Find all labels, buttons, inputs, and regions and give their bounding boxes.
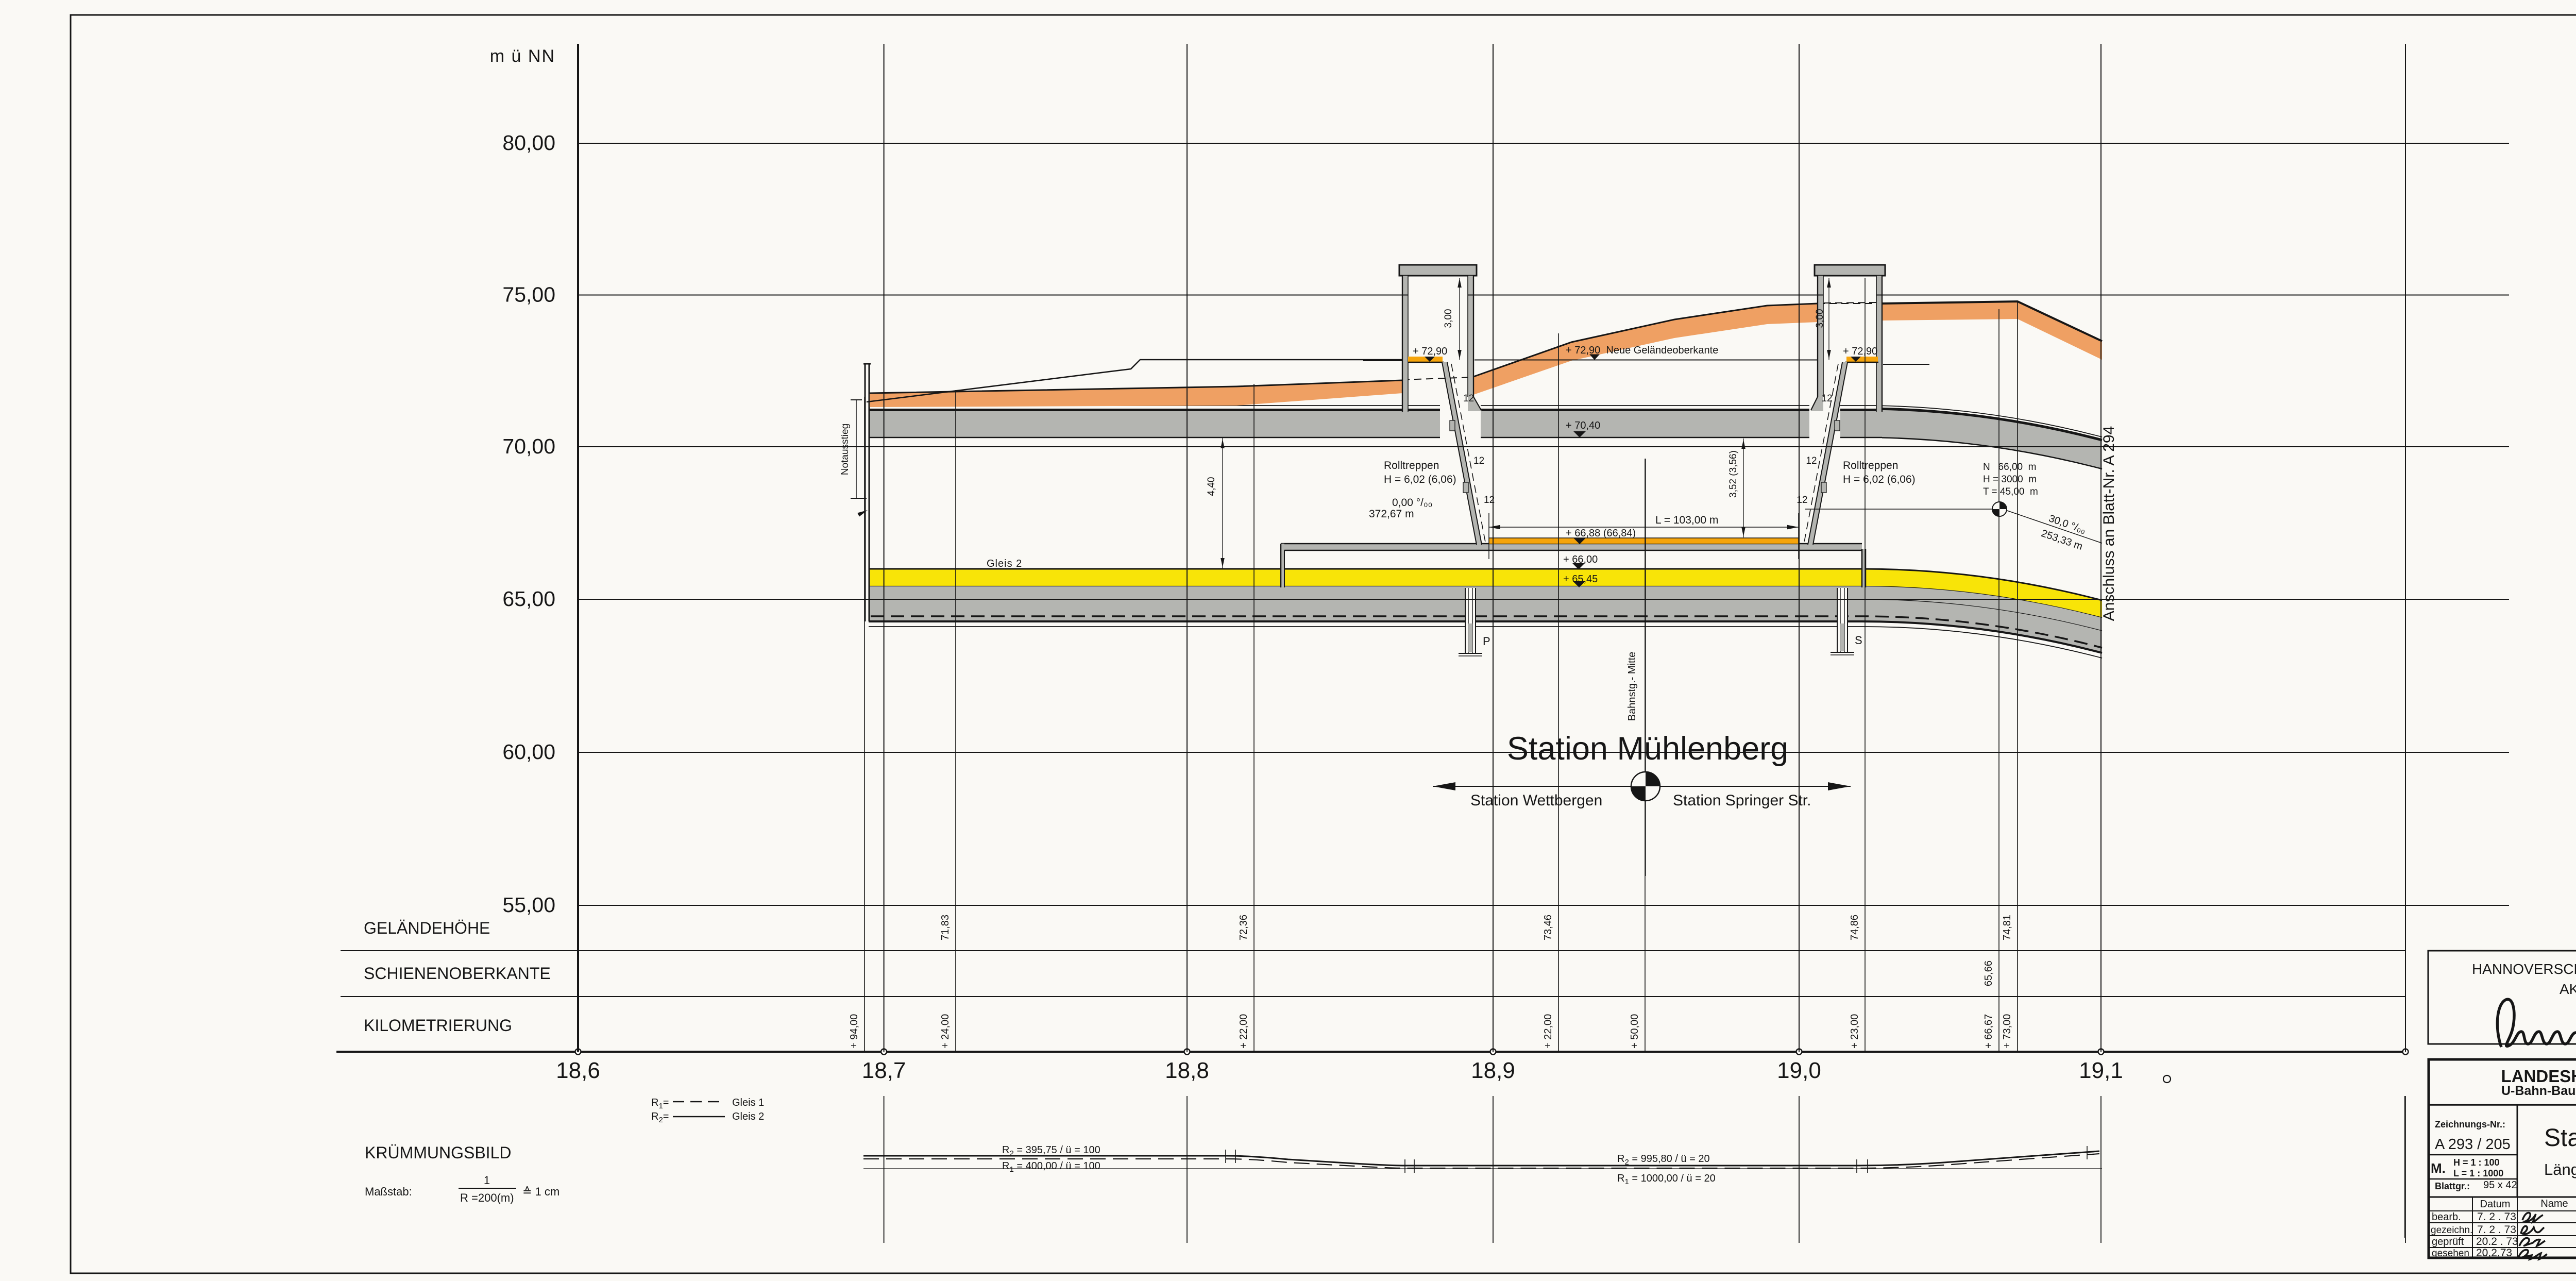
svg-text:+ 73,00: + 73,00 bbox=[2002, 1014, 2013, 1049]
svg-text:T = 45,00 m: T = 45,00 m bbox=[1983, 486, 2038, 497]
svg-text:19,1: 19,1 bbox=[2079, 1058, 2123, 1083]
svg-text:3,52 (3,56): 3,52 (3,56) bbox=[1728, 450, 1739, 498]
svg-text:Notausstieg: Notausstieg bbox=[840, 424, 851, 475]
svg-text:+ 23,00: + 23,00 bbox=[1849, 1014, 1860, 1049]
svg-text:+ 22,00: + 22,00 bbox=[1238, 1014, 1249, 1049]
svg-text:18,9: 18,9 bbox=[1471, 1058, 1515, 1083]
svg-text:+ 66,88 (66,84): + 66,88 (66,84) bbox=[1566, 528, 1636, 539]
svg-text:12: 12 bbox=[1821, 393, 1832, 404]
svg-text:AKTIENGESELLSCHAFT: AKTIENGESELLSCHAFT bbox=[2560, 981, 2576, 997]
svg-text:12: 12 bbox=[1806, 456, 1817, 466]
svg-text:U-Bahn-Bauamt: U-Bahn-Bauamt bbox=[2501, 1084, 2576, 1098]
svg-text:70,00: 70,00 bbox=[502, 434, 555, 458]
svg-text:P: P bbox=[1483, 635, 1490, 648]
svg-text:+ 70,40: + 70,40 bbox=[1566, 420, 1600, 431]
svg-text:+ 72,90 Neue Geländeoberkante: + 72,90 Neue Geländeoberkante bbox=[1566, 345, 1718, 356]
svg-text:L = 1 : 1000: L = 1 : 1000 bbox=[2453, 1168, 2503, 1178]
svg-text:gezeichn.: gezeichn. bbox=[2431, 1225, 2472, 1236]
svg-text:+ 72,90: + 72,90 bbox=[1843, 346, 1877, 357]
svg-text:12: 12 bbox=[1797, 495, 1807, 505]
svg-text:Maßstab:: Maßstab: bbox=[365, 1185, 412, 1198]
svg-text:H = 1 : 100: H = 1 : 100 bbox=[2453, 1157, 2500, 1168]
svg-text:GELÄNDEHÖHE: GELÄNDEHÖHE bbox=[364, 919, 490, 937]
svg-text:95 x 42: 95 x 42 bbox=[2483, 1179, 2517, 1191]
svg-text:Längsschnitt: Längsschnitt bbox=[2544, 1160, 2576, 1178]
svg-text:0,00 °/₀₀: 0,00 °/₀₀ bbox=[1392, 497, 1432, 509]
svg-text:geprüft: geprüft bbox=[2432, 1236, 2464, 1248]
svg-text:19,0: 19,0 bbox=[1777, 1058, 1821, 1083]
svg-text:+ 72,90: + 72,90 bbox=[1413, 346, 1447, 357]
svg-text:gesehen: gesehen bbox=[2432, 1248, 2469, 1259]
svg-text:65,00: 65,00 bbox=[502, 587, 555, 611]
svg-text:20,2,73: 20,2,73 bbox=[2476, 1247, 2512, 1259]
svg-text:+ 94,00: + 94,00 bbox=[849, 1014, 860, 1049]
svg-text:Datum: Datum bbox=[2480, 1199, 2511, 1210]
svg-text:Zeichnungs-Nr.:: Zeichnungs-Nr.: bbox=[2435, 1119, 2505, 1130]
svg-text:SCHIENENOBERKANTE: SCHIENENOBERKANTE bbox=[364, 964, 551, 983]
svg-text:L = 103,00 m: L = 103,00 m bbox=[1655, 514, 1718, 526]
svg-text:bearb.: bearb. bbox=[2432, 1211, 2461, 1223]
svg-text:A 293 / 205: A 293 / 205 bbox=[2435, 1136, 2511, 1153]
svg-text:74,86: 74,86 bbox=[1849, 915, 1860, 940]
svg-text:S: S bbox=[1855, 634, 1862, 647]
svg-text:H = 6,02 (6,06): H = 6,02 (6,06) bbox=[1384, 474, 1456, 485]
svg-text:60,00: 60,00 bbox=[502, 740, 555, 764]
svg-text:7. 2 . 73: 7. 2 . 73 bbox=[2477, 1211, 2516, 1223]
svg-text:18,7: 18,7 bbox=[862, 1058, 906, 1083]
svg-text:4,40: 4,40 bbox=[1206, 477, 1217, 496]
svg-text:3,00: 3,00 bbox=[1815, 309, 1825, 328]
svg-text:+ 50,00: + 50,00 bbox=[1629, 1014, 1640, 1049]
svg-text:1: 1 bbox=[484, 1174, 490, 1187]
svg-text:Station Springer Str.: Station Springer Str. bbox=[1673, 792, 1811, 809]
svg-text:H = 6,02 (6,06): H = 6,02 (6,06) bbox=[1843, 474, 1916, 485]
svg-text:74,81: 74,81 bbox=[2002, 915, 2013, 940]
svg-text:18,6: 18,6 bbox=[556, 1058, 600, 1083]
svg-text:LANDESHAUPTSTADT HANNOVER: LANDESHAUPTSTADT HANNOVER bbox=[2501, 1067, 2576, 1086]
svg-text:Rolltreppen: Rolltreppen bbox=[1384, 460, 1439, 471]
svg-text:H = 3000 m: H = 3000 m bbox=[1983, 474, 2037, 485]
svg-text:55,00: 55,00 bbox=[502, 893, 555, 917]
svg-text:R =200(m): R =200(m) bbox=[460, 1191, 514, 1204]
svg-text:Gleis 2: Gleis 2 bbox=[732, 1111, 764, 1122]
svg-text:≙ 1 cm: ≙ 1 cm bbox=[522, 1185, 560, 1198]
svg-text:73,46: 73,46 bbox=[1543, 915, 1554, 940]
svg-text:372,67 m: 372,67 m bbox=[1369, 508, 1414, 520]
svg-text:Station Wettbergen: Station Wettbergen bbox=[1470, 792, 1602, 809]
svg-text:Bahnstg.- Mitte: Bahnstg.- Mitte bbox=[1626, 652, 1638, 721]
svg-text:Name: Name bbox=[2540, 1198, 2568, 1209]
svg-text:20.2 . 73: 20.2 . 73 bbox=[2476, 1236, 2518, 1248]
svg-text:18,8: 18,8 bbox=[1165, 1058, 1209, 1083]
svg-text:7. 2 . 73: 7. 2 . 73 bbox=[2477, 1224, 2516, 1236]
svg-text:Anschluss an Blatt-Nr. A 294: Anschluss an Blatt-Nr. A 294 bbox=[2100, 426, 2117, 621]
svg-text:Gleis 1: Gleis 1 bbox=[732, 1097, 764, 1108]
svg-text:80,00: 80,00 bbox=[502, 131, 555, 155]
svg-text:Gleis 2: Gleis 2 bbox=[987, 558, 1022, 569]
svg-text:Station Mühlenberg: Station Mühlenberg bbox=[2544, 1124, 2576, 1152]
svg-text:12: 12 bbox=[1463, 393, 1474, 404]
svg-text:KRÜMMUNGSBILD: KRÜMMUNGSBILD bbox=[365, 1143, 511, 1162]
svg-text:KILOMETRIERUNG: KILOMETRIERUNG bbox=[364, 1016, 512, 1035]
svg-text:HANNOVERSCHE VERKEHRSBETRIEBE: HANNOVERSCHE VERKEHRSBETRIEBE (ÜSTRA) bbox=[2472, 961, 2576, 977]
svg-text:m ü NN: m ü NN bbox=[490, 46, 555, 66]
svg-text:M.: M. bbox=[2431, 1160, 2446, 1176]
svg-text:Blattgr.:: Blattgr.: bbox=[2435, 1181, 2470, 1191]
svg-text:72,36: 72,36 bbox=[1238, 915, 1249, 940]
svg-text:65,66: 65,66 bbox=[1983, 960, 1994, 986]
svg-text:3,00: 3,00 bbox=[1443, 309, 1454, 328]
svg-text:+ 24,00: + 24,00 bbox=[940, 1014, 951, 1049]
svg-text:Station Mühlenberg: Station Mühlenberg bbox=[1507, 731, 1788, 767]
svg-text:N 66,00 m: N 66,00 m bbox=[1983, 462, 2037, 473]
svg-text:+ 66,67: + 66,67 bbox=[1983, 1014, 1994, 1049]
svg-text:+ 22,00: + 22,00 bbox=[1543, 1014, 1554, 1049]
svg-text:Rolltreppen: Rolltreppen bbox=[1843, 460, 1898, 471]
svg-text:75,00: 75,00 bbox=[502, 283, 555, 307]
svg-text:12: 12 bbox=[1473, 456, 1484, 466]
svg-text:71,83: 71,83 bbox=[940, 915, 951, 940]
